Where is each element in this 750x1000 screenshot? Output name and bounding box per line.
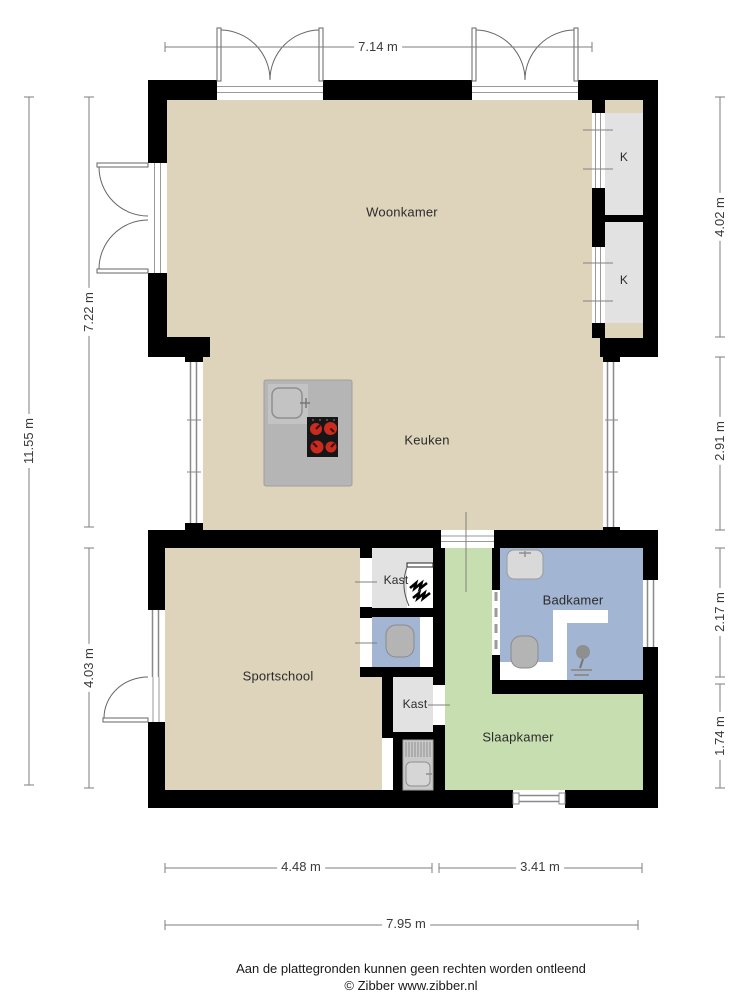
dim-right-lower-upper: 2.17 m bbox=[713, 588, 727, 636]
window-keuken-left bbox=[185, 362, 203, 523]
toilet-icon bbox=[386, 625, 414, 657]
window-badkamer-right bbox=[643, 580, 658, 647]
room-label-closet-k2: K bbox=[620, 273, 628, 287]
dim-right-middle: 2.91 m bbox=[713, 417, 727, 465]
floor-woonkamer-keuken bbox=[167, 100, 643, 530]
dim-left-total: 11.55 m bbox=[22, 414, 36, 468]
door-woonkamer-top-right bbox=[472, 28, 578, 100]
room-label-sportschool: Sportschool bbox=[243, 669, 314, 684]
room-label-badkamer: Badkamer bbox=[543, 593, 604, 608]
room-label-kast-boven: Kast bbox=[384, 573, 409, 587]
dim-bottom-left: 4.48 m bbox=[277, 860, 325, 874]
door-woonkamer-top-left bbox=[217, 28, 323, 100]
kitchen-sink-icon bbox=[268, 384, 310, 424]
dim-left-lower: 4.03 m bbox=[82, 644, 96, 692]
counter-sink-icon bbox=[403, 740, 433, 790]
door-woonkamer-left bbox=[97, 163, 167, 273]
bathroom-sink-icon bbox=[507, 550, 543, 579]
window-slaapkamer-bottom bbox=[513, 790, 565, 808]
dim-bottom-right: 3.41 m bbox=[516, 860, 564, 874]
cooktop-icon bbox=[307, 417, 338, 457]
room-label-kast-onder: Kast bbox=[403, 697, 428, 711]
floorplan-page: Woonkamer Keuken Sportschool Slaapkamer … bbox=[0, 0, 750, 1000]
door-sportschool-left bbox=[103, 677, 165, 722]
window-keuken-right bbox=[603, 362, 620, 527]
window-sportschool-left bbox=[148, 610, 165, 677]
footer-disclaimer: Aan de plattegronden kunnen geen rechten… bbox=[236, 961, 586, 976]
door-sliding-badkamer bbox=[492, 590, 500, 655]
floorplan-drawing bbox=[0, 0, 750, 1000]
kitchen-island bbox=[264, 380, 352, 486]
dim-right-lower-bottom: 1.74 m bbox=[713, 712, 727, 760]
dim-right-upper: 4.02 m bbox=[713, 193, 727, 241]
room-label-keuken: Keuken bbox=[404, 433, 449, 448]
room-label-woonkamer: Woonkamer bbox=[366, 205, 438, 220]
dim-bottom-total: 7.95 m bbox=[382, 917, 430, 931]
room-label-slaapkamer: Slaapkamer bbox=[482, 730, 553, 745]
footer-copyright: © Zibber www.zibber.nl bbox=[344, 978, 477, 993]
dim-left-upper: 7.22 m bbox=[82, 288, 96, 336]
dim-top-width: 7.14 m bbox=[354, 40, 402, 54]
room-label-closet-k1: K bbox=[620, 150, 628, 164]
floor-closet-k1 bbox=[605, 113, 643, 215]
